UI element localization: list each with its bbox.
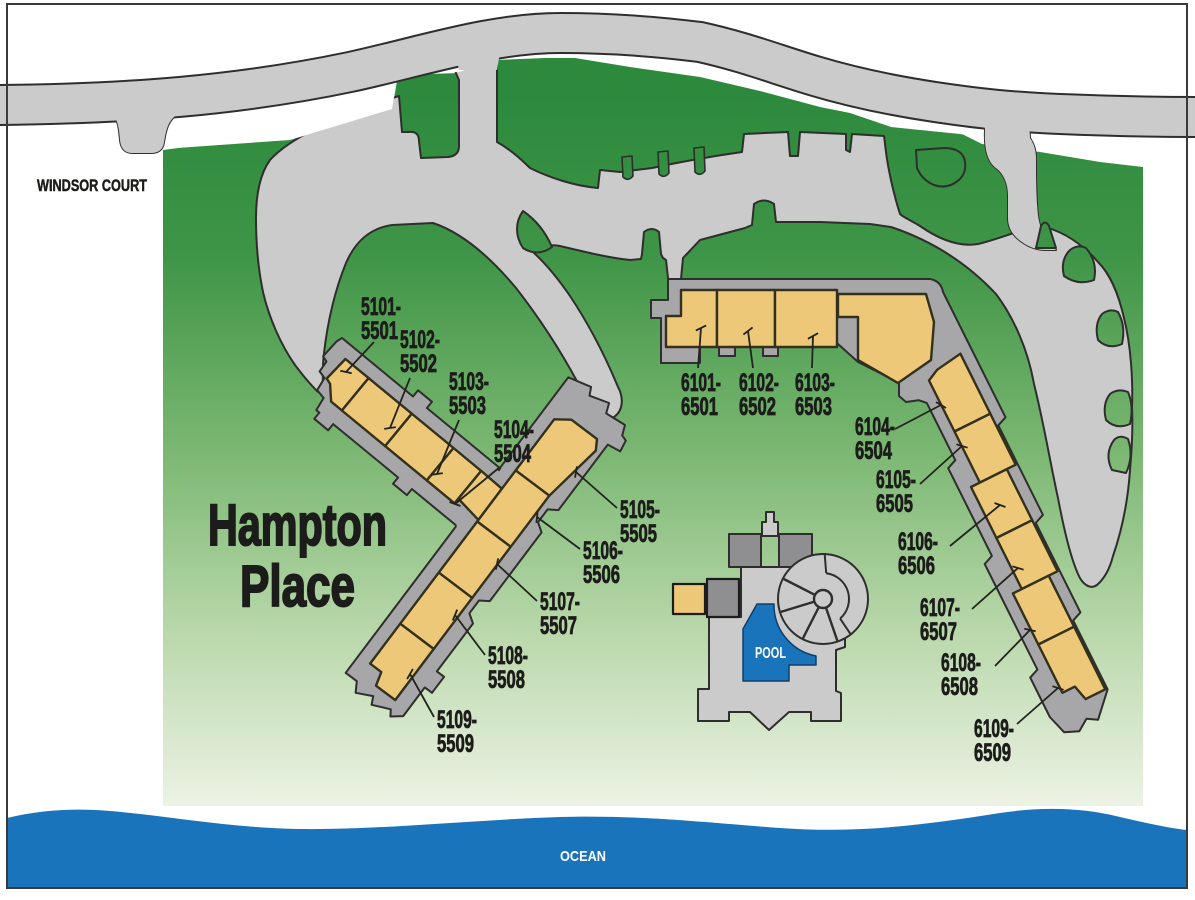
- svg-text:6507: 6507: [920, 618, 957, 646]
- svg-text:5504: 5504: [494, 440, 531, 468]
- svg-text:6506: 6506: [898, 552, 935, 580]
- svg-text:Hampton: Hampton: [208, 493, 387, 558]
- svg-text:WINDSOR COURT: WINDSOR COURT: [37, 177, 147, 195]
- svg-text:6505: 6505: [876, 490, 913, 518]
- svg-text:5509: 5509: [437, 730, 474, 758]
- svg-text:6501: 6501: [681, 393, 718, 421]
- svg-text:6504: 6504: [855, 437, 892, 465]
- svg-text:5503: 5503: [449, 392, 486, 420]
- svg-text:6508: 6508: [941, 673, 978, 701]
- svg-text:5505: 5505: [620, 520, 657, 548]
- svg-text:Place: Place: [240, 554, 355, 619]
- svg-text:6502: 6502: [739, 393, 776, 421]
- svg-text:POOL: POOL: [755, 645, 786, 662]
- svg-text:OCEAN: OCEAN: [560, 848, 606, 865]
- svg-text:6509: 6509: [974, 739, 1011, 767]
- svg-text:5502: 5502: [400, 350, 437, 378]
- svg-text:5506: 5506: [583, 561, 620, 589]
- svg-text:5507: 5507: [540, 612, 577, 640]
- svg-text:5501: 5501: [361, 317, 398, 345]
- svg-text:6503: 6503: [795, 393, 832, 421]
- svg-text:5508: 5508: [488, 666, 525, 694]
